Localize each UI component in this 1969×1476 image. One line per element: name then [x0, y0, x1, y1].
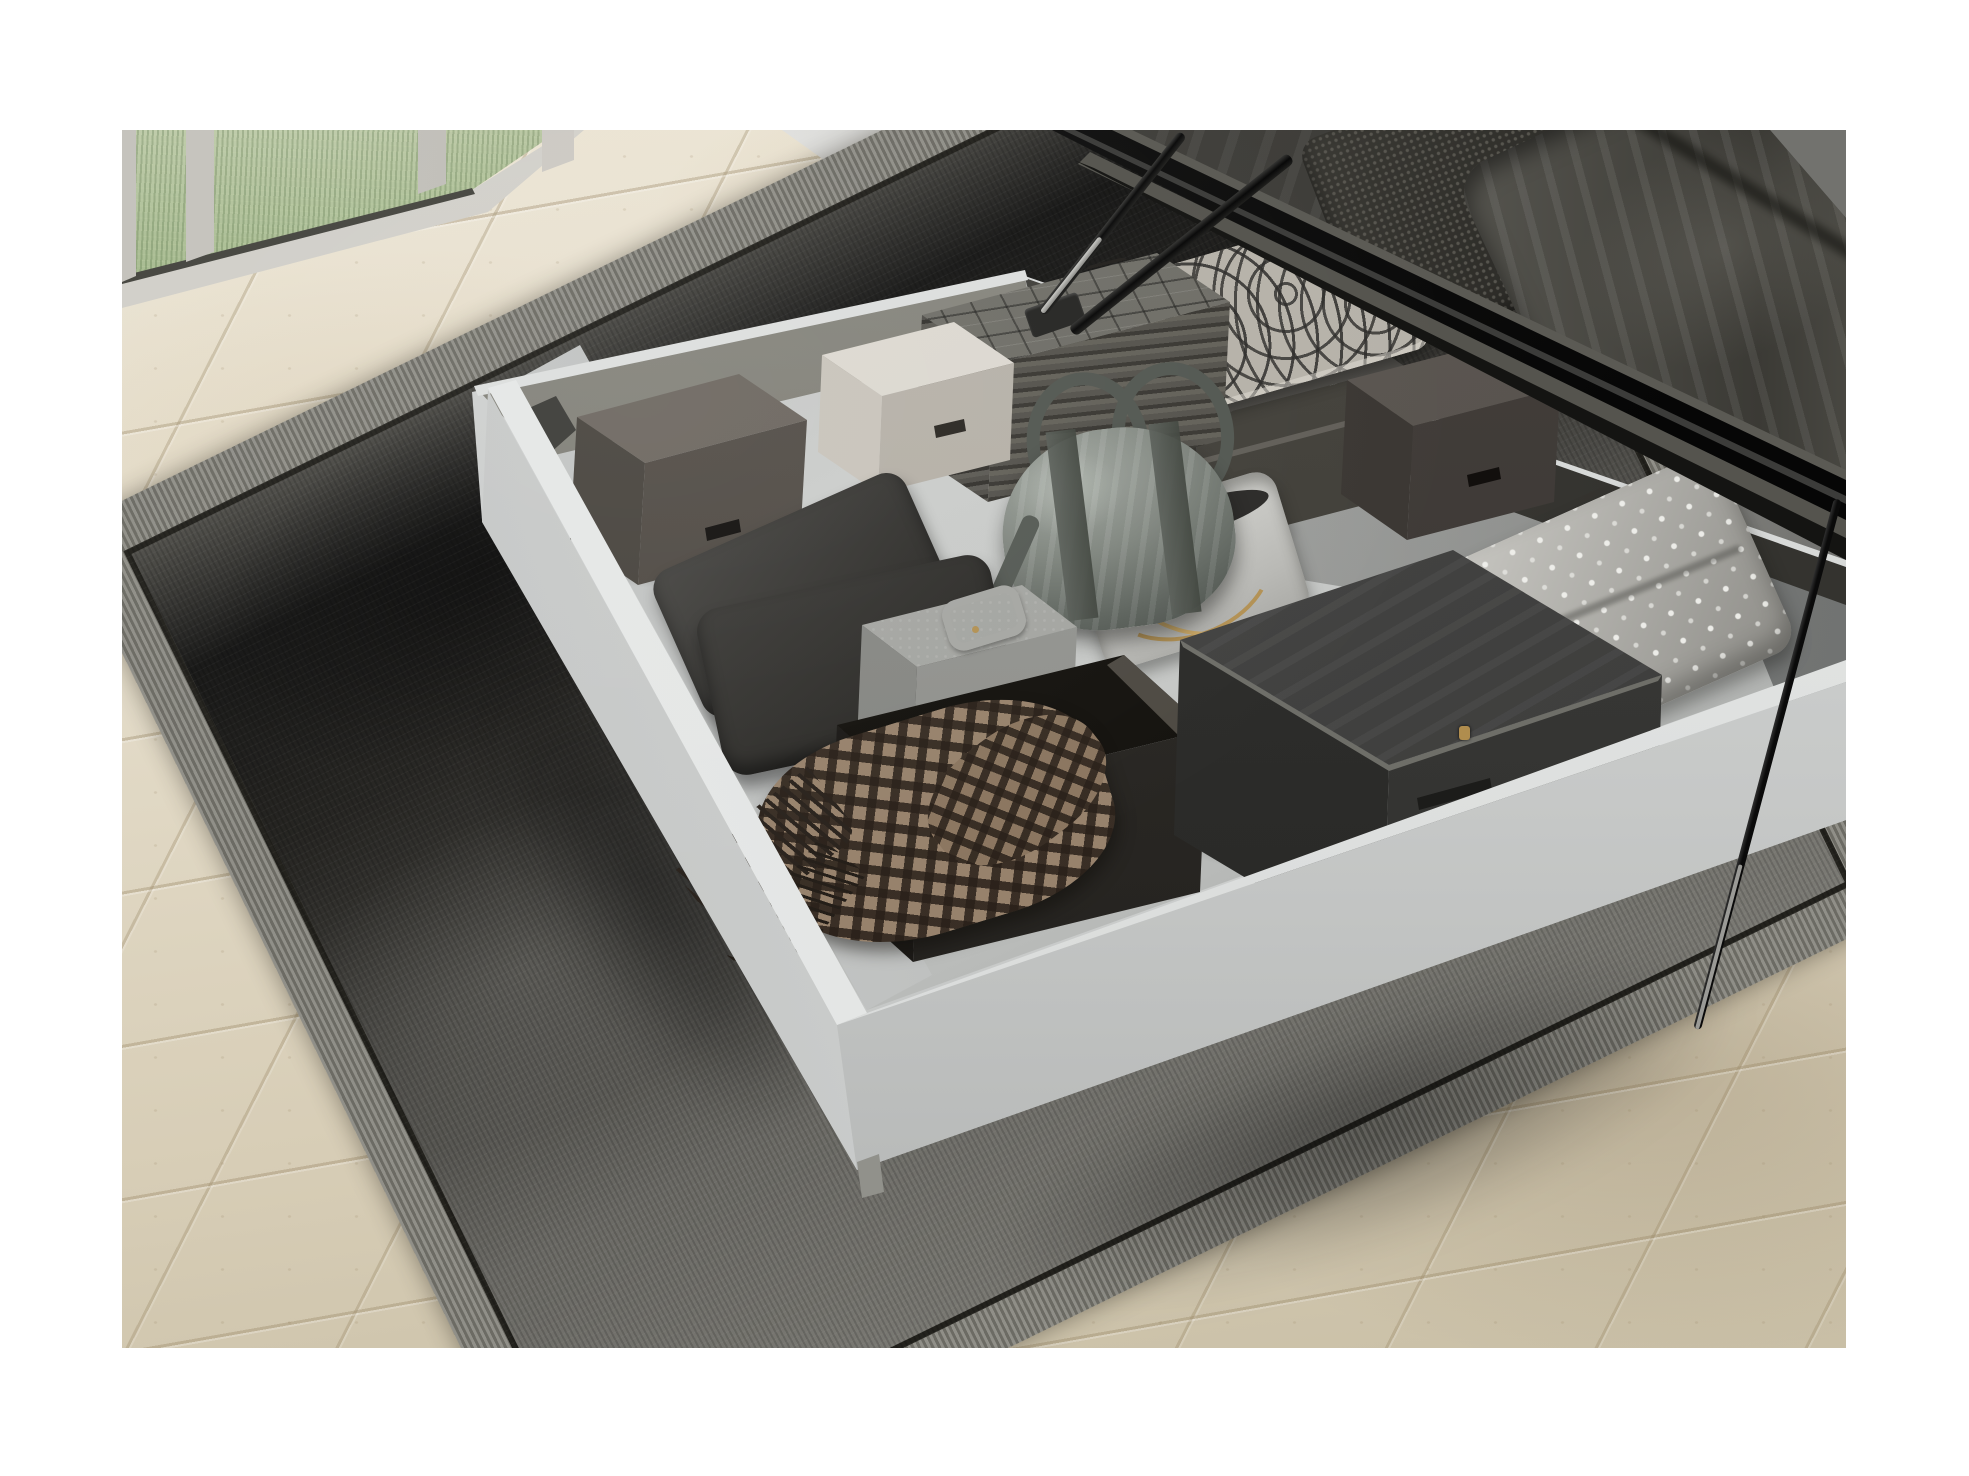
product-photo	[122, 130, 1846, 1348]
page	[0, 0, 1969, 1476]
lighting-vignette	[122, 130, 1846, 1348]
